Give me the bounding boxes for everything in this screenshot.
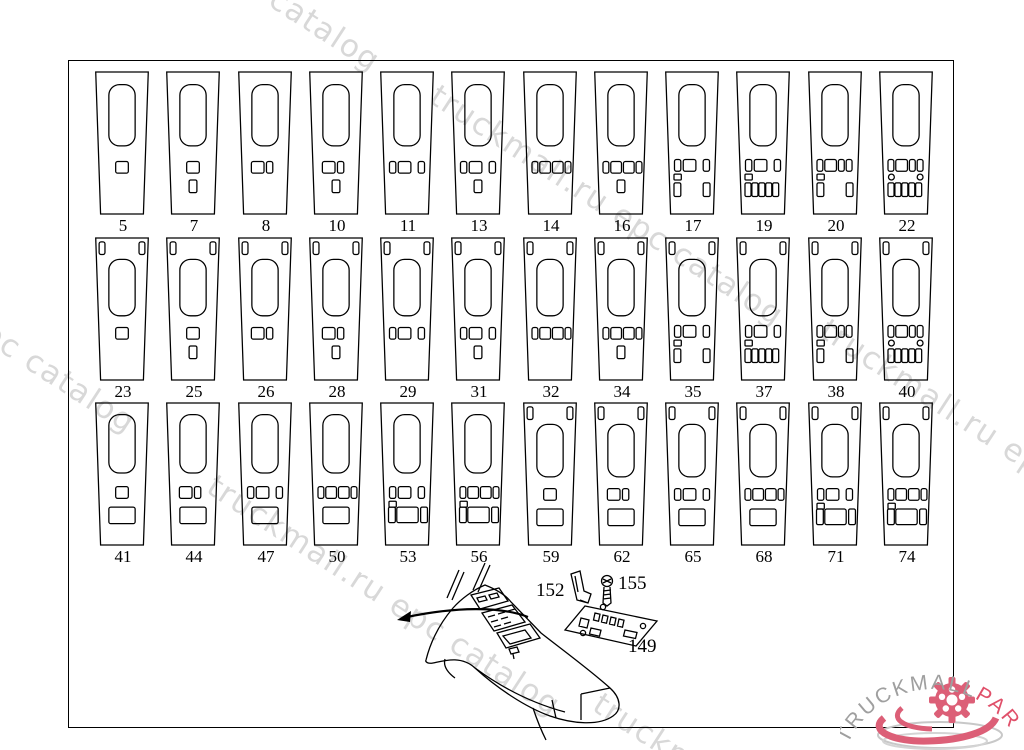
panel-variant-41: 41 <box>92 401 154 569</box>
panel-number: 47 <box>235 547 297 567</box>
panel-number: 37 <box>733 382 795 402</box>
panel-variant-40: 40 <box>876 236 938 404</box>
panel-variant-11: 11 <box>377 70 439 238</box>
panel-number: 34 <box>591 382 653 402</box>
panel-number: 5 <box>92 216 154 236</box>
panel-number: 35 <box>662 382 724 402</box>
screw-part <box>602 576 613 607</box>
part-number-149: 149 <box>628 636 657 658</box>
console-box-end <box>552 688 610 720</box>
panel-variant-47: 47 <box>235 401 297 569</box>
panel-variant-7: 7 <box>163 70 225 238</box>
panel-variant-62: 62 <box>591 401 653 569</box>
panel-variant-16: 16 <box>591 70 653 238</box>
panel-number: 71 <box>805 547 867 567</box>
panel-number: 74 <box>876 547 938 567</box>
panel-variant-23: 23 <box>92 236 154 404</box>
panel-variant-8: 8 <box>235 70 297 238</box>
panel-variant-10: 10 <box>306 70 368 238</box>
panel-number: 14 <box>520 216 582 236</box>
panel-number: 41 <box>92 547 154 567</box>
panel-number: 68 <box>733 547 795 567</box>
panel-number: 38 <box>805 382 867 402</box>
panel-variant-44: 44 <box>163 401 225 569</box>
panel-variant-32: 32 <box>520 236 582 404</box>
panel-variant-22: 22 <box>876 70 938 238</box>
panel-variant-17: 17 <box>662 70 724 238</box>
panel-variant-53: 53 <box>377 401 439 569</box>
logo-swoosh-small <box>897 708 932 729</box>
panel-number: 8 <box>235 216 297 236</box>
panel-variant-65: 65 <box>662 401 724 569</box>
panel-variant-25: 25 <box>163 236 225 404</box>
panel-number: 13 <box>448 216 510 236</box>
panel-number: 16 <box>591 216 653 236</box>
panel-number: 50 <box>306 547 368 567</box>
panel-variant-35: 35 <box>662 236 724 404</box>
panel-variant-31: 31 <box>448 236 510 404</box>
panel-variant-28: 28 <box>306 236 368 404</box>
panel-number: 23 <box>92 382 154 402</box>
panel-number: 7 <box>163 216 225 236</box>
panel-number: 44 <box>163 547 225 567</box>
console-inner-sweep <box>444 659 565 712</box>
panel-number: 11 <box>377 216 439 236</box>
panel-variant-5: 5 <box>92 70 154 238</box>
console-body <box>426 585 619 723</box>
panel-number: 29 <box>377 382 439 402</box>
panel-variant-59: 59 <box>520 401 582 569</box>
panel-variant-34: 34 <box>591 236 653 404</box>
panel-variant-26: 26 <box>235 236 297 404</box>
truckmall-parts-logo: TRUCKMALLPARTS <box>840 638 1024 750</box>
panel-variant-20: 20 <box>805 70 867 238</box>
panel-number: 19 <box>733 216 795 236</box>
panel-number: 40 <box>876 382 938 402</box>
climate-panel <box>471 588 508 609</box>
panel-number: 17 <box>662 216 724 236</box>
panel-variant-50: 50 <box>306 401 368 569</box>
panel-number: 25 <box>163 382 225 402</box>
pointer-arrowhead <box>397 611 411 622</box>
panel-number: 28 <box>306 382 368 402</box>
panel-variant-13: 13 <box>448 70 510 238</box>
panel-number: 20 <box>805 216 867 236</box>
panel-variant-56: 56 <box>448 401 510 569</box>
knob <box>509 647 519 659</box>
panel-number: 10 <box>306 216 368 236</box>
panel-variant-74: 74 <box>876 401 938 569</box>
part-number-152: 152 <box>536 580 565 602</box>
panel-variant-29: 29 <box>377 236 439 404</box>
panel-variant-38: 38 <box>805 236 867 404</box>
part-number-155: 155 <box>618 573 647 595</box>
panel-number: 26 <box>235 382 297 402</box>
panel-number: 22 <box>876 216 938 236</box>
panel-variant-19: 19 <box>733 70 795 238</box>
catalog-page: epc catalog truckmall.ru epc catalog tru… <box>0 0 1024 750</box>
console-bottom-tip <box>533 708 546 740</box>
panel-number: 32 <box>520 382 582 402</box>
clip-part <box>571 571 591 603</box>
panel-variant-68: 68 <box>733 401 795 569</box>
panel-variant-14: 14 <box>520 70 582 238</box>
panel-number: 31 <box>448 382 510 402</box>
panel-variant-37: 37 <box>733 236 795 404</box>
panel-variant-71: 71 <box>805 401 867 569</box>
